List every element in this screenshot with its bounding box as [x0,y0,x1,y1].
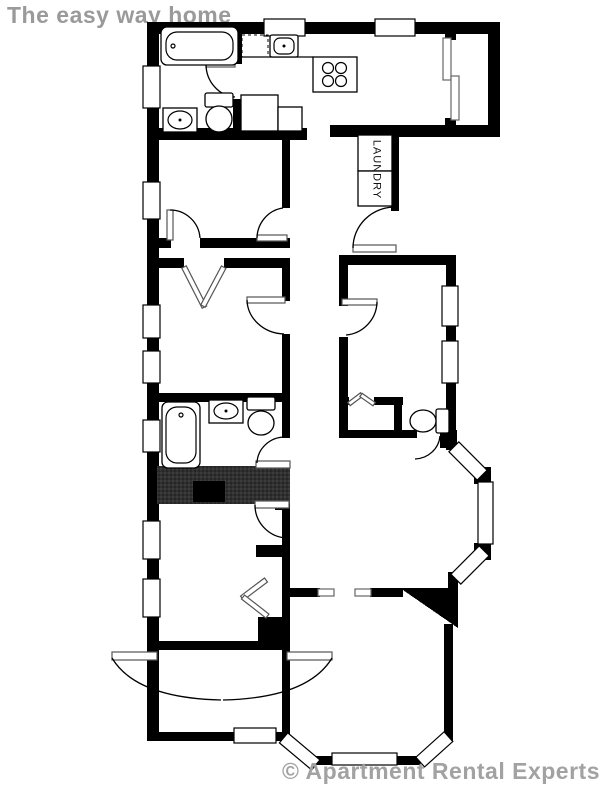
window-icon [143,66,160,108]
bathtub-icon [162,402,200,468]
stairs-icon [157,466,290,504]
window-icon [143,351,160,383]
door-arc-icon [346,302,377,335]
sliding-door-icon [451,76,459,120]
double-entry-door-icon [112,658,221,700]
window-icon [442,341,458,383]
window-icon [442,286,458,326]
door-leaf [247,297,285,303]
laundry-room-label: LAUNDRY [368,135,383,205]
door-arc-icon [170,210,200,238]
bathtub-icon [161,27,238,65]
copyright-watermark: © Apartment Rental Experts [282,758,600,785]
door-leaf [342,299,377,305]
refrigerator-icon [241,95,302,131]
window-icon [143,182,160,219]
door-leaf [257,235,287,241]
bathroom-sink-icon [163,108,197,132]
closet-bifold-icon [201,266,226,307]
kitchen-sink-icon [270,35,298,57]
half-wall-sill [355,589,371,596]
door-arc-icon [257,437,285,463]
toilet-icon [205,93,233,132]
door-leaf [167,210,173,240]
window-icon [375,19,415,36]
closet-doors [182,266,375,618]
floor-plan-page: The easy way home [0,0,612,792]
door-leaf [255,501,289,508]
closet-bifold-icon [360,393,375,405]
toilet-icon [247,397,275,435]
stove-icon [313,57,357,92]
bay-window-icon [478,482,493,544]
door-arc-icon [353,207,395,248]
window-icon [143,420,160,452]
window-icon [143,521,160,559]
closet-bifold-icon [241,595,269,618]
bay-window-icon [451,546,489,584]
window-icon [143,305,160,338]
bay-window-icon [449,442,487,480]
window-icon [264,19,305,36]
door-leaf [256,461,290,468]
door-arc-icon [415,436,440,459]
toilet-icon [410,409,449,433]
sliding-door-icon [443,38,451,80]
door-leaf [353,245,396,252]
dishwasher-icon [242,35,268,57]
window-icon [234,728,276,743]
entry-door-leaf [287,652,332,660]
floor-plan-svg [0,0,612,792]
door-arc-icon [257,208,283,238]
door-arc-icon [247,300,284,334]
window-icon [143,579,160,617]
half-wall-sill [318,589,334,596]
bathroom-sink-icon [209,400,243,423]
entry-door-leaf [112,652,157,660]
door-arc-icon [206,64,235,97]
double-entry-door-icon [223,658,332,700]
